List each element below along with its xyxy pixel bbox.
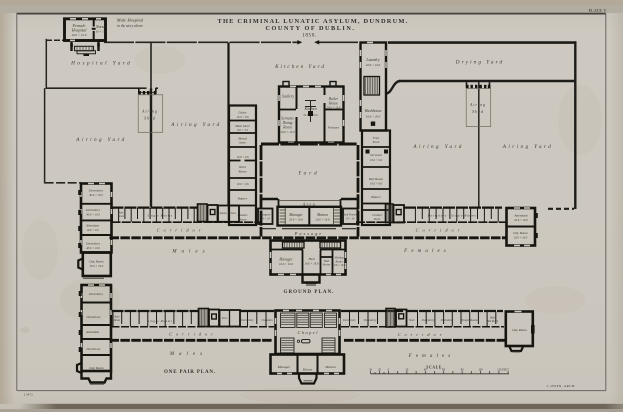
svg-text:10.6 × 9.6: 10.6 × 9.6 <box>370 158 383 162</box>
svg-text:120 FEET: 120 FEET <box>497 368 509 371</box>
svg-text:Servants: Servants <box>370 153 382 157</box>
svg-text:Dormitory: Dormitory <box>85 347 101 351</box>
svg-text:Scullery: Scullery <box>282 95 294 99</box>
svg-text:Boiler: Boiler <box>329 97 339 101</box>
svg-text:Single Rooms: Single Rooms <box>147 214 172 218</box>
svg-text:Hospital Yard: Hospital Yard <box>70 61 132 67</box>
svg-text:Dormitory: Dormitory <box>88 292 104 296</box>
svg-text:Room: Room <box>238 170 247 174</box>
svg-text:Male Hospital: Male Hospital <box>116 18 144 23</box>
svg-text:Room: Room <box>117 215 124 218</box>
svg-text:Manager: Manager <box>278 258 293 262</box>
svg-text:Kitchen Yard: Kitchen Yard <box>274 64 326 70</box>
svg-text:Hall: Hall <box>307 257 314 261</box>
svg-text:Room: Room <box>282 126 292 130</box>
svg-text:Porter: Porter <box>322 263 332 267</box>
svg-text:20.6 × 16.0: 20.6 × 16.0 <box>514 235 528 239</box>
svg-text:10.6 × 9.6: 10.6 × 9.6 <box>236 155 249 159</box>
svg-text:Dining: Dining <box>282 121 293 125</box>
svg-text:Dormitory: Dormitory <box>363 318 377 322</box>
svg-text:Airing Yard: Airing Yard <box>412 144 463 150</box>
svg-text:Airing Yard: Airing Yard <box>170 122 221 128</box>
svg-text:Males: Males <box>171 250 209 255</box>
svg-text:Manager: Manager <box>277 365 291 369</box>
svg-text:Shed: Shed <box>144 117 156 121</box>
svg-text:Females: Females <box>403 249 450 254</box>
svg-text:Dormitory: Dormitory <box>342 318 356 322</box>
svg-text:40.6 × 19.0: 40.6 × 19.0 <box>86 246 100 250</box>
svg-text:20.6 × 16.6: 20.6 × 16.6 <box>326 106 341 110</box>
svg-text:Males: Males <box>169 352 207 357</box>
svg-text:10.6 × 16.6: 10.6 × 16.6 <box>332 264 346 267</box>
svg-text:Surgery: Surgery <box>261 213 271 217</box>
svg-text:1850.: 1850. <box>302 32 317 38</box>
svg-text:Shed: Shed <box>472 110 484 114</box>
svg-text:Dormitory: Dormitory <box>85 315 101 319</box>
svg-text:Store: Store <box>239 141 247 145</box>
svg-text:Nurse: Nurse <box>95 25 106 29</box>
svg-text:16.6 × 20.0: 16.6 × 20.0 <box>366 115 381 119</box>
svg-text:Single Rooms: Single Rooms <box>147 319 172 323</box>
svg-text:40.0 × 19.0: 40.0 × 19.0 <box>72 33 87 37</box>
svg-text:COUNTY OF DUBLIN.: COUNTY OF DUBLIN. <box>265 25 355 32</box>
svg-text:10 × 16: 10 × 16 <box>261 218 270 221</box>
svg-text:Dormitory: Dormitory <box>240 318 254 322</box>
svg-text:9.6 × 7.6: 9.6 × 7.6 <box>237 128 248 132</box>
svg-text:Dormitory: Dormitory <box>421 318 435 322</box>
svg-text:30.9 × 19.0: 30.9 × 19.0 <box>90 264 104 268</box>
svg-text:Work: Work <box>239 165 247 169</box>
svg-text:SCALE.: SCALE. <box>426 365 443 369</box>
svg-text:L 34 72: L 34 72 <box>24 394 33 397</box>
svg-text:40.6 × 16.6: 40.6 × 16.6 <box>366 63 381 67</box>
svg-text:Airing: Airing <box>469 103 486 107</box>
svg-text:Store: Store <box>374 217 381 221</box>
svg-text:Bakers: Bakers <box>238 197 248 201</box>
svg-text:Attend: Attend <box>218 212 227 215</box>
svg-text:20.6 × 16.6: 20.6 × 16.6 <box>289 218 304 222</box>
svg-text:PLATE V.: PLATE V. <box>589 8 608 13</box>
svg-text:Yard: Yard <box>298 172 319 177</box>
svg-text:20.6 × 16.6: 20.6 × 16.6 <box>514 218 528 222</box>
svg-text:40.6 × 19.0: 40.6 × 19.0 <box>89 193 103 197</box>
svg-text:16.6 × 16.6: 16.6 × 16.6 <box>279 262 294 266</box>
svg-text:10.6 × 9.6: 10.6 × 9.6 <box>370 182 383 186</box>
svg-text:Dormitory · Single Rooms: Dormitory · Single Rooms <box>427 214 477 218</box>
svg-text:Passage: Passage <box>294 231 324 236</box>
svg-text:100: 100 <box>478 368 483 371</box>
svg-text:in the story above: in the story above <box>117 24 143 28</box>
svg-text:Dormitory: Dormitory <box>440 318 454 322</box>
svg-text:Room: Room <box>113 319 120 322</box>
svg-text:10.6 × 9.6: 10.6 × 9.6 <box>236 115 249 119</box>
svg-text:ONE PAIR PLAN.: ONE PAIR PLAN. <box>164 370 216 375</box>
svg-text:Hospital: Hospital <box>71 27 88 32</box>
svg-text:Corridor: Corridor <box>157 228 205 233</box>
svg-text:10.6 × 9.6: 10.6 × 9.6 <box>86 228 99 232</box>
svg-text:Bakers: Bakers <box>371 195 381 199</box>
svg-text:Servants: Servants <box>281 117 294 121</box>
svg-text:Drying Yard: Drying Yard <box>455 60 505 66</box>
svg-text:Room: Room <box>335 259 344 263</box>
svg-text:GROUND PLAN.: GROUND PLAN. <box>284 290 335 295</box>
svg-text:Attendant: Attendant <box>85 330 100 334</box>
svg-text:Chapel: Chapel <box>297 330 318 335</box>
svg-text:Single Rooms: Single Rooms <box>462 318 480 322</box>
svg-text:Day Room: Day Room <box>88 366 104 370</box>
svg-text:Airing: Airing <box>141 110 158 114</box>
svg-text:Laundry: Laundry <box>365 58 379 62</box>
svg-text:Potatoes: Potatoes <box>327 126 340 130</box>
svg-text:10.6 × 9.6: 10.6 × 9.6 <box>236 182 249 186</box>
svg-text:Matron: Matron <box>316 213 328 217</box>
svg-text:Day Room: Day Room <box>511 328 527 332</box>
svg-text:Hall Porter: Hall Porter <box>342 213 358 217</box>
svg-text:Airing Yard: Airing Yard <box>502 144 553 150</box>
svg-text:Store: Store <box>231 212 237 215</box>
svg-text:Bed Room: Bed Room <box>487 320 498 323</box>
svg-text:Store: Store <box>409 319 416 322</box>
svg-text:Corridor: Corridor <box>169 332 217 337</box>
svg-text:Females: Females <box>408 354 455 359</box>
svg-text:Chaplain: Chaplain <box>261 318 273 322</box>
svg-text:10 × 16: 10 × 16 <box>346 218 355 221</box>
svg-text:40.6 × 19.0: 40.6 × 19.0 <box>86 212 100 216</box>
svg-text:Corridor: Corridor <box>398 332 446 337</box>
svg-text:Matron: Matron <box>324 365 336 369</box>
svg-text:20.6 × 16.6: 20.6 × 16.6 <box>315 218 330 222</box>
svg-text:Matron: Matron <box>302 368 313 372</box>
svg-text:16.6 × 16.6: 16.6 × 16.6 <box>304 262 319 266</box>
svg-text:Manager: Manager <box>288 213 303 217</box>
svg-text:Airing Yard: Airing Yard <box>75 137 126 143</box>
svg-text:Washhouse: Washhouse <box>364 109 382 113</box>
svg-text:Bed Room: Bed Room <box>369 177 384 181</box>
svg-text:20.6 × 16.0: 20.6 × 16.0 <box>280 130 295 134</box>
svg-text:Corridor: Corridor <box>416 228 464 233</box>
svg-text:Store: Store <box>372 140 380 144</box>
svg-text:Store: Store <box>222 317 228 320</box>
svg-text:10 × 19: 10 × 19 <box>96 29 106 33</box>
